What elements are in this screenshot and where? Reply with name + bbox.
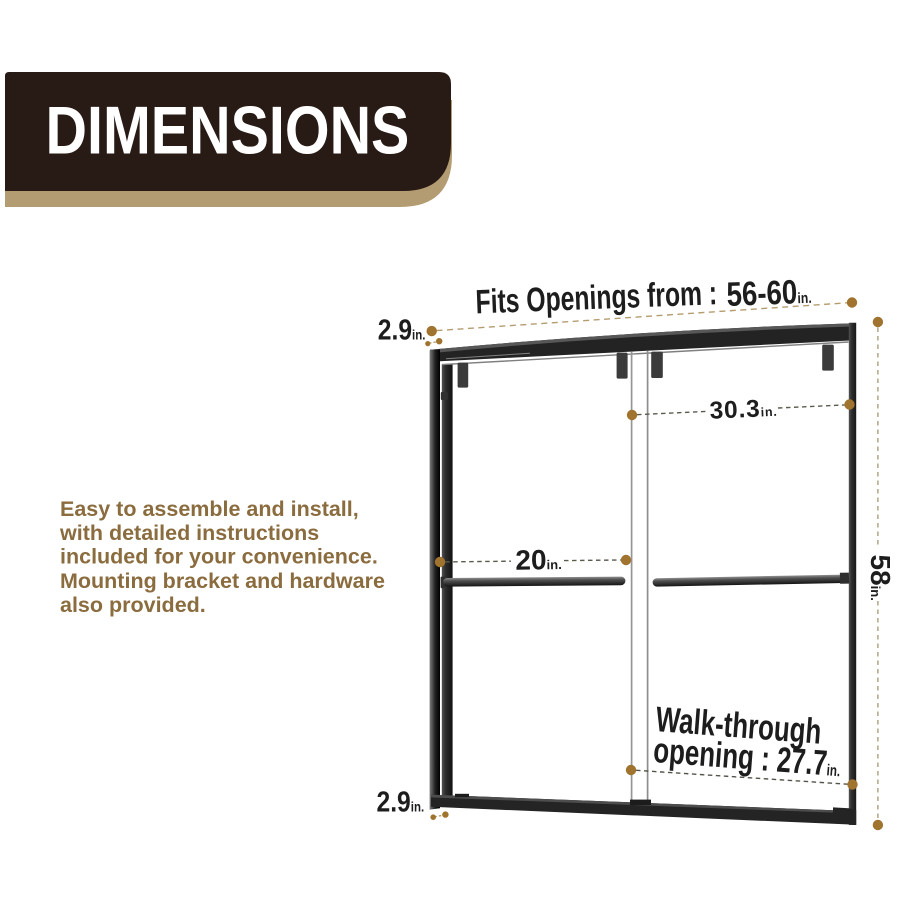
svg-text:DIMENSIONS: DIMENSIONS [46, 93, 410, 169]
svg-text:30.3in.: 30.3in. [709, 395, 778, 425]
svg-text:58in.: 58in. [865, 555, 896, 601]
svg-text:also provided.: also provided. [60, 593, 206, 617]
svg-text:20in.: 20in. [515, 544, 562, 576]
svg-text:with detailed instructions: with detailed instructions [59, 521, 319, 545]
svg-text:2.9in.: 2.9in. [378, 314, 426, 346]
svg-text:Mounting bracket and hardware: Mounting bracket and hardware [60, 569, 385, 593]
svg-text:56-60in.: 56-60in. [726, 272, 812, 314]
svg-text:included for your convenience.: included for your convenience. [60, 545, 378, 569]
svg-text:2.9in.: 2.9in. [377, 786, 425, 818]
svg-text:Easy to assemble and install,: Easy to assemble and install, [60, 497, 359, 521]
